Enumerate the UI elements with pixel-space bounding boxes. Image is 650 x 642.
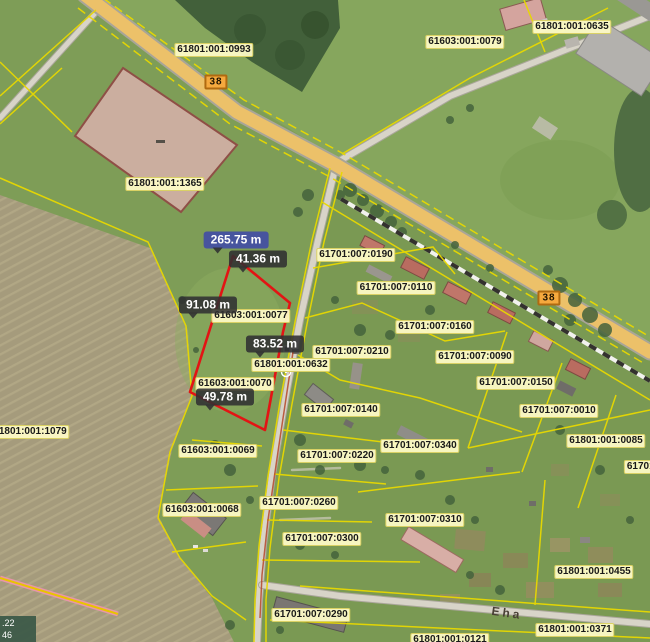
parcel-label: 61701:007:0010: [519, 404, 598, 418]
parcel-label: 61801:001:0632: [251, 358, 330, 372]
coordinate-line-2: 46: [2, 629, 36, 641]
parcel-label: 61603:001:0079: [425, 35, 504, 49]
parcel-label: 61701:007:0310: [385, 513, 464, 527]
map-labels-layer: 61801:001:099361603:001:007961801:001:06…: [0, 0, 650, 642]
parcel-label: 61801:001:0121: [410, 633, 489, 642]
parcel-label: 61801:001:0085: [566, 434, 645, 448]
parcel-label: 61701:007:0300: [282, 532, 361, 546]
parcel-label: 61701:007:0150: [476, 376, 555, 390]
parcel-label: 61801:001:0371: [535, 623, 614, 637]
coordinate-readout: .22 46: [0, 616, 36, 642]
parcel-label: 61801:001:1079: [0, 425, 70, 439]
measurement-segment-label: 83.52 m: [246, 336, 304, 353]
parcel-label: 61603:001:0068: [162, 503, 241, 517]
coordinate-line-1: .22: [2, 617, 36, 629]
parcel-label: 61701:007:0190: [316, 248, 395, 262]
measurement-segment-label: 41.36 m: [229, 251, 287, 268]
parcel-label: 61603:001:0069: [178, 444, 257, 458]
parcel-label: 61701:007:0220: [297, 449, 376, 463]
map-canvas[interactable]: 61801:001:099361603:001:007961801:001:06…: [0, 0, 650, 642]
road-number-badge: 38: [204, 75, 227, 90]
parcel-label: 61801:001:1365: [125, 177, 204, 191]
parcel-label: 61701:007:0160: [395, 320, 474, 334]
parcel-label: 61701:007:0260: [259, 496, 338, 510]
parcel-label: 61701:007:0340: [380, 439, 459, 453]
measurement-segment-label: 91.08 m: [179, 297, 237, 314]
measurement-segment-label: 49.78 m: [196, 389, 254, 406]
parcel-label: 61701:007:0090: [435, 350, 514, 364]
parcel-label: 61801:001:0635: [532, 20, 611, 34]
road-number-badge: 38: [537, 291, 560, 306]
parcel-label: 61701:007:0110: [357, 281, 436, 295]
parcel-label: 61701:007:0210: [312, 345, 391, 359]
parcel-label: 61701:007:0140: [301, 403, 380, 417]
parcel-label: 61701:00: [624, 460, 650, 474]
parcel-label: 61701:007:0290: [271, 608, 350, 622]
parcel-label: 61801:001:0993: [174, 43, 253, 57]
parcel-label: 61801:001:0455: [554, 565, 633, 579]
measurement-total-label: 265.75 m: [204, 232, 269, 249]
